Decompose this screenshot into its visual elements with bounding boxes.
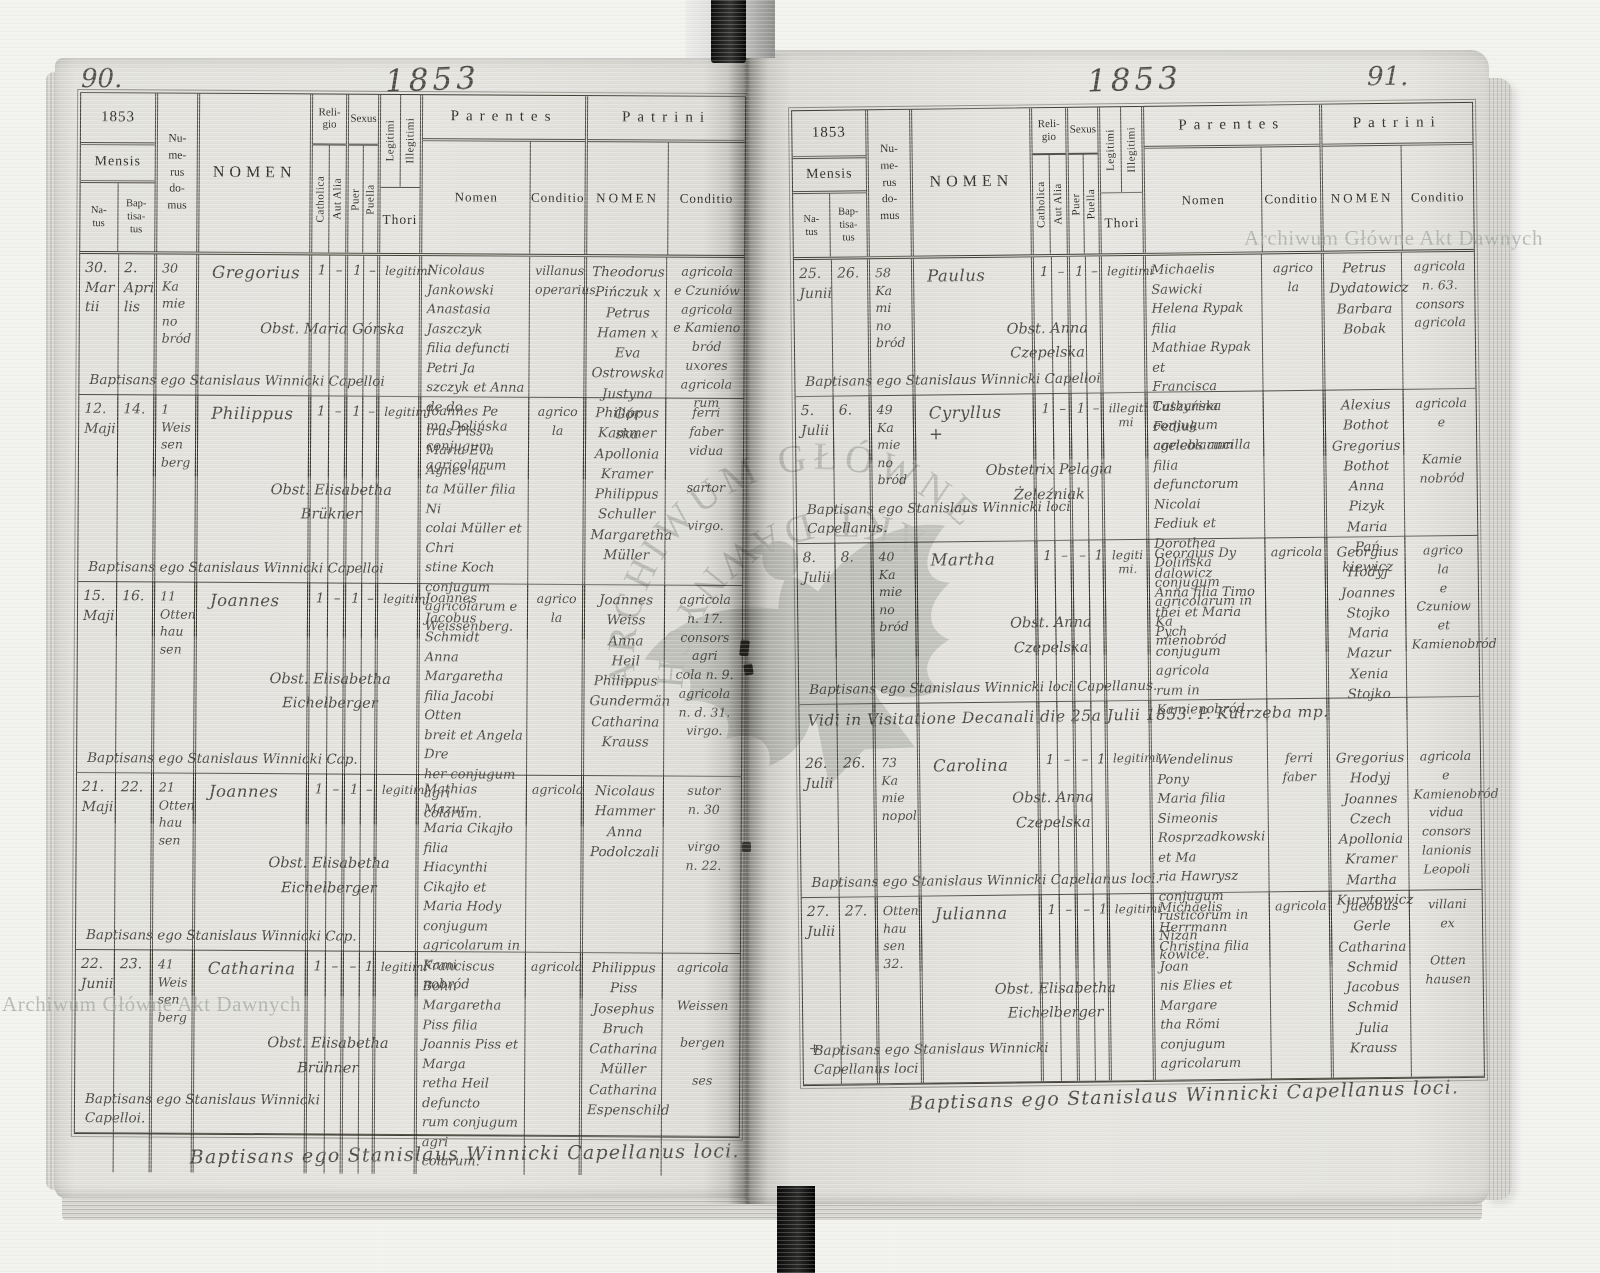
header-natus-baptisatus: Na- tus Bap- tisa- tus xyxy=(793,194,867,258)
header-illegitimi: Illegitimi xyxy=(1121,107,1142,192)
header-sexus: Sexus xyxy=(1068,107,1098,155)
baptism-record-row: 5. Julii 6. 49 Ka mie no bród Cyryllus +… xyxy=(796,389,1478,544)
house-number: 41 Weis sen berg xyxy=(152,950,195,1172)
parents-condition: agricola xyxy=(1265,538,1329,721)
godparents-condition: agrico la e Czuniow et Kamienobród xyxy=(1405,536,1479,719)
header-baptisatus: Bap- tisa- tus xyxy=(118,183,155,252)
header-catholica: Catholica xyxy=(312,145,330,252)
midwife-note: Obst. Elisabetha Eichelberger xyxy=(227,666,432,717)
baptizer-note: Baptisans ego Stanislaus Winnicki Cap. xyxy=(87,749,532,771)
header-sexus-subcolumns: Puer Puella xyxy=(348,146,378,253)
baptism-record-row: 30. Mar tii 2. Apri lis 30 Ka mie no bró… xyxy=(79,254,744,399)
header-legitimi: Legitimi xyxy=(1100,107,1122,192)
parents-condition: agricola xyxy=(1270,892,1334,1079)
left-page: 90. 1853 1853 Mensis Na- tus Bap- tisa- … xyxy=(55,58,747,1198)
child-name: Joannes xyxy=(202,588,305,612)
child-name: Martha xyxy=(922,546,1032,571)
header-baptisatus: Bap- tisa- tus xyxy=(830,194,867,257)
header-mensis: Mensis xyxy=(81,145,155,183)
midwife-note: Obst. Elisabetha Brükner xyxy=(229,478,434,529)
header-sexus-subcolumns: Puer Puella xyxy=(1069,155,1099,254)
baptizer-note: Baptisans ego Stanislaus Winnicki Cap. xyxy=(86,926,531,948)
header-legitimacy-subcolumns: Legitimi Illegitimi xyxy=(1100,107,1142,193)
header-natus-baptisatus: Na- tus Bap- tisa- tus xyxy=(80,183,154,252)
header-legitimacy-subcolumns: Legitimi Illegitimi xyxy=(381,95,421,188)
header-illegitimi: Illegitimi xyxy=(401,95,421,187)
header-religio-subcolumns: Catholica Aut Alia xyxy=(1033,155,1067,254)
archive-watermark-text-top-right: Archiwum Główne Akt Dawnych xyxy=(1244,226,1543,251)
midwife-note: Obst. Maria Górska xyxy=(230,316,435,342)
baptism-record-row: 12. Maji 14. 1 Weis sen berg Philippus 1… xyxy=(78,395,743,586)
godparents-names: Georgius Hodyj Joannes Stojko Maria Mazu… xyxy=(1327,537,1407,720)
header-patrini-subcolumns: NOMEN Conditio xyxy=(587,142,745,255)
header-sexus: Sexus xyxy=(349,95,378,146)
header-patrini: Patrini xyxy=(1322,103,1473,147)
header-sexus-group: Sexus Puer Puella xyxy=(1068,107,1102,253)
parents-names: Franciscus Bohn Margaretha Piss filia Jo… xyxy=(417,952,526,1174)
header-catholica: Catholica xyxy=(1033,155,1051,254)
midwife-note: Obst. Elisabetha Brühner xyxy=(225,1031,430,1082)
header-patrini-group: Patrini NOMEN Conditio xyxy=(587,96,745,255)
baptism-record-row: 22. Junii 23. 41 Weis sen berg Catharina… xyxy=(75,950,740,1137)
header-thori: Thori xyxy=(380,187,419,253)
header-parentes-nomen: Nomen xyxy=(422,141,531,254)
header-mensis-group: 1853 Mensis Na- tus Bap- tisa- tus xyxy=(792,110,870,257)
baptism-record-row: 8. Julii 8. 40 Ka mie no bród Martha 1 –… xyxy=(797,536,1479,705)
right-page: 91. 1853 1853 Mensis Na- tus Bap- tisa- … xyxy=(747,50,1489,1204)
child-name: Paulus xyxy=(919,262,1029,287)
header-aut-alia: Aut Alia xyxy=(1050,155,1067,254)
baptizer-note: Baptisans ego Stanislaus Winnicki loci C… xyxy=(807,495,1252,540)
baptism-record-row: 26. Julii 26. 73 Ka mie nopol Carolina 1… xyxy=(799,697,1481,898)
child-name: Philippus xyxy=(203,401,306,425)
header-parentes-conditio: Conditio xyxy=(531,141,585,254)
header-year: 1853 xyxy=(81,93,155,145)
godparents-condition: villani ex Otten hausen xyxy=(1410,890,1484,1077)
child-name: Gregorius xyxy=(204,260,307,284)
header-religio: Reli- gio xyxy=(1032,108,1066,156)
year-heading-script: 1853 xyxy=(1086,60,1182,99)
header-patrini-conditio: Conditio xyxy=(668,142,745,255)
header-numerus-domus: Nu- me- rus do- mus xyxy=(868,110,914,257)
natus-date: 22. Junii xyxy=(75,950,115,1172)
child-name: Julianna xyxy=(927,900,1037,925)
baptizer-note: Baptisans ego Stanislaus Winnicki Capell… xyxy=(89,371,534,393)
header-puella: Puella xyxy=(1084,155,1099,254)
header-patrini-nomen: NOMEN xyxy=(587,142,669,255)
header-aut-alia: Aut Alia xyxy=(329,145,346,252)
header-mensis-group: 1853 Mensis Na- tus Bap- tisa- tus xyxy=(80,93,158,251)
baptism-register-table: 1853 Mensis Na- tus Bap- tisa- tus Nu- m… xyxy=(74,92,746,1138)
header-parentes: Parentes xyxy=(423,95,585,142)
midwife-note: Obst. Anna Czepelska xyxy=(945,316,1151,368)
header-thori-group: Legitimi Illegitimi Thori xyxy=(380,95,423,253)
book-clamp-top-rod xyxy=(711,0,746,63)
header-puer: Puer xyxy=(348,146,364,253)
archive-watermark-text-bottom-left: Archiwum Główne Akt Dawnych xyxy=(2,992,301,1017)
table-header: 1853 Mensis Na- tus Bap- tisa- tus Nu- m… xyxy=(80,93,745,258)
midwife-note: Obst. Anna Czepelska xyxy=(948,610,1154,662)
child-name: Catharina xyxy=(200,956,303,980)
baptism-record-row: 25. Junii 26. 58 Ka mi no bród Paulus 1 … xyxy=(794,252,1476,397)
child-name: Carolina xyxy=(925,752,1035,777)
baptism-record-row: 15. Maji 16. 11 Otten hau sen Joannes 1 … xyxy=(77,582,742,777)
midwife-note: Obst. Elisabetha Eichelberger xyxy=(226,851,431,902)
baptism-record-row: 27. Julii + 27. Otten hau sen 32. Julian… xyxy=(802,890,1484,1085)
header-legitimi: Legitimi xyxy=(381,95,402,187)
header-thori: Thori xyxy=(1101,193,1143,254)
header-patrini: Patrini xyxy=(588,96,745,143)
header-numerus-domus: Nu- me- rus do- mus xyxy=(157,93,200,251)
midwife-note: Obst. Anna Czepelska xyxy=(950,785,1156,837)
binding-stitch xyxy=(743,663,753,675)
header-puer: Puer xyxy=(1069,155,1085,254)
table-body: 25. Junii 26. 58 Ka mi no bród Paulus 1 … xyxy=(794,252,1484,1085)
baptizer-note: Baptisans ego Stanislaus Winnicki Capell… xyxy=(85,1090,530,1132)
header-natus: Na- tus xyxy=(793,194,831,257)
godparents-names: Jacobus Gerle Catharina Schmid Jacobus S… xyxy=(1332,891,1412,1078)
header-parentes-subcolumns: Nomen Conditio xyxy=(422,141,585,254)
header-religio: Reli- gio xyxy=(313,94,346,145)
header-religio-subcolumns: Catholica Aut Alia xyxy=(312,145,346,252)
baptism-record-row: 21. Maji 22. 21 Otten hau sen Joannes 1 … xyxy=(76,773,741,954)
binding-stitch xyxy=(742,842,751,852)
header-thori-group: Legitimi Illegitimi Thori xyxy=(1100,107,1146,254)
child-name: Cyryllus + xyxy=(921,399,1032,445)
midwife-note: Obst. Elisabetha Eichelberger xyxy=(953,976,1159,1028)
year-heading-script: 1853 xyxy=(384,60,480,99)
header-natus: Na- tus xyxy=(80,183,118,252)
header-sexus-group: Sexus Puer Puella xyxy=(348,95,381,253)
page-number: 91. xyxy=(1367,62,1408,92)
header-religio-group: Reli- gio Catholica Aut Alia xyxy=(1032,108,1070,254)
scanned-register-spread: { "document": { "archive_stamp": "Archiw… xyxy=(0,0,1600,1273)
baptizer-note: Baptisans ego Stanislaus Winnicki Capell… xyxy=(88,558,533,580)
baptisatus-date: 23. xyxy=(114,950,153,1172)
header-mensis: Mensis xyxy=(793,159,866,195)
header-year: 1853 xyxy=(792,110,866,159)
child-name: Joannes xyxy=(201,779,304,803)
page-number: 90. xyxy=(81,64,122,94)
header-parentes: Parentes xyxy=(1144,105,1320,150)
baptizer-note: Baptisans ego Stanislaus Winnicki Capell… xyxy=(813,1036,1258,1081)
book-clamp-bottom xyxy=(777,1186,815,1273)
header-nomen: NOMEN xyxy=(912,108,1034,255)
header-parentes-group: Parentes Nomen Conditio xyxy=(422,95,588,254)
header-nomen: NOMEN xyxy=(199,94,313,253)
header-religio-group: Reli- gio Catholica Aut Alia xyxy=(312,94,349,252)
header-puella: Puella xyxy=(363,146,378,253)
binding-stitch xyxy=(739,640,750,657)
